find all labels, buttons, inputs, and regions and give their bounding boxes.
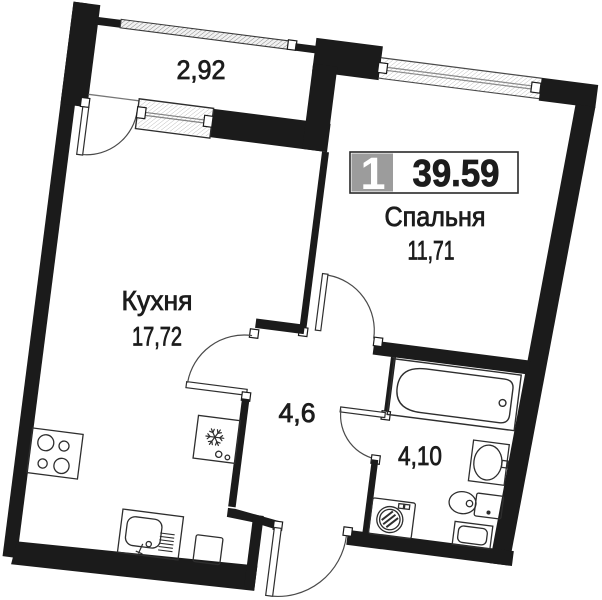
svg-text:39.59: 39.59 — [413, 153, 500, 195]
svg-text:Спальня: Спальня — [385, 201, 486, 232]
svg-text:4,6: 4,6 — [279, 398, 316, 428]
svg-text:2,92: 2,92 — [177, 55, 226, 85]
svg-text:17,72: 17,72 — [132, 322, 182, 352]
svg-text:4,10: 4,10 — [398, 441, 442, 471]
svg-text:11,71: 11,71 — [408, 236, 455, 266]
svg-text:Кухня: Кухня — [122, 285, 193, 316]
svg-text:1: 1 — [360, 148, 385, 199]
